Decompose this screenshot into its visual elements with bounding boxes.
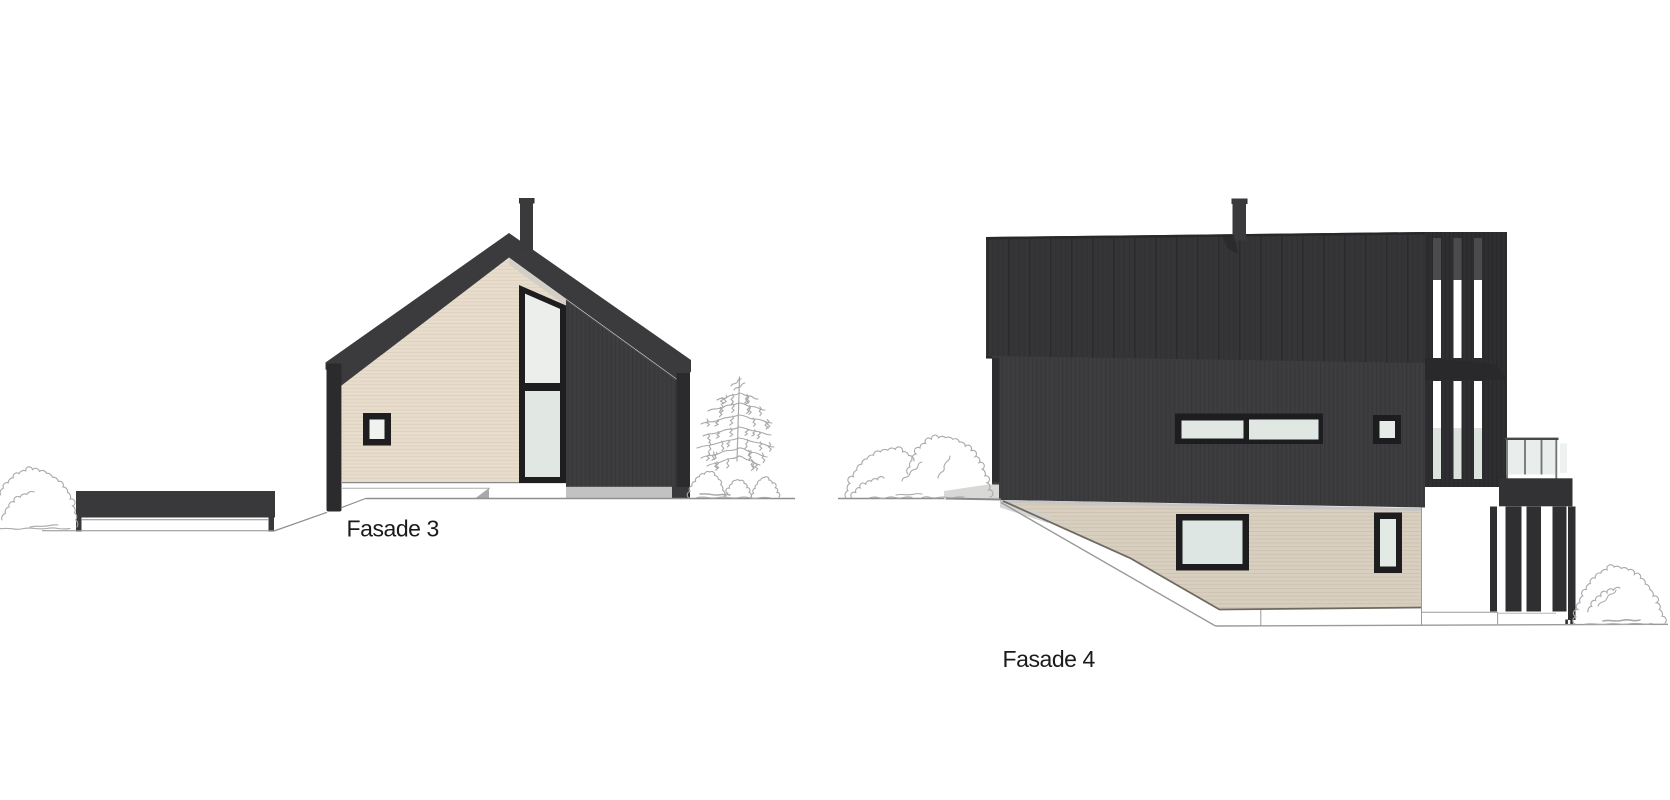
svg-text:Fasade 3: Fasade 3 [347,516,439,542]
svg-text:Fasade 4: Fasade 4 [1003,646,1096,672]
